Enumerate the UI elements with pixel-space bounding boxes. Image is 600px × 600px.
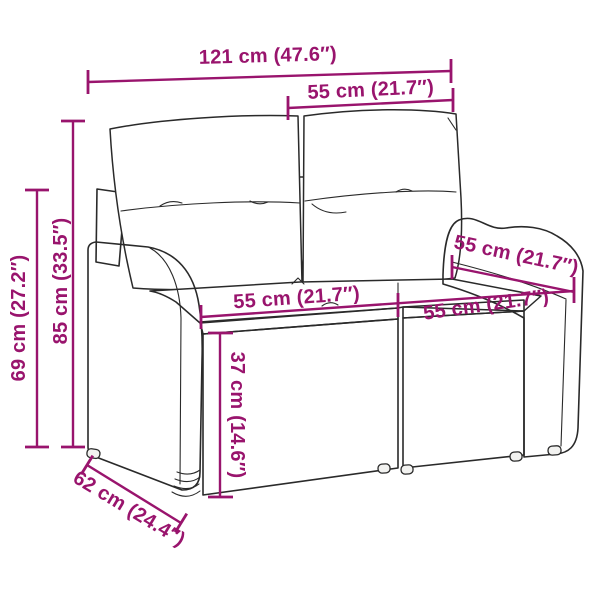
dim-seat-height: 37 cm (14.6″) [208,333,248,497]
back-cushion-right [303,110,462,284]
back-cushion-left [110,116,302,290]
dim-overall-depth-label: 62 cm (24.4″) [69,467,189,551]
dim-armrest-height: 69 cm (27.2″) [8,190,49,447]
bench-dimension-drawing: 121 cm (47.6″) 55 cm (21.7″) 85 cm (33.5… [0,0,600,600]
dim-armrest-height-label: 69 cm (27.2″) [8,255,30,382]
bench-feet [86,446,561,475]
dim-total-width-label: 121 cm (47.6″) [199,43,338,69]
dim-overall-height-label: 85 cm (33.5″) [50,218,72,345]
dim-overall-height: 85 cm (33.5″) [50,121,85,447]
dimension-diagram: 121 cm (47.6″) 55 cm (21.7″) 85 cm (33.5… [0,0,600,600]
front-panel-right [403,311,524,468]
dim-seat-height-label: 37 cm (14.6″) [226,352,248,479]
dim-backrest-width-label: 55 cm (21.7″) [307,76,435,104]
